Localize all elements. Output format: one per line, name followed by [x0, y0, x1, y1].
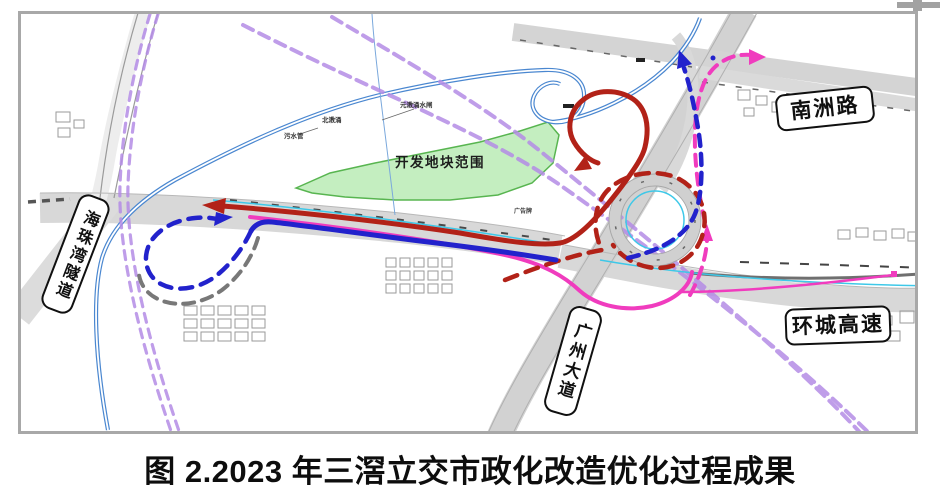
figure-page: { "figure_caption": "图 2.2023 年三滘立交市政化改造…: [0, 0, 940, 502]
tiny-label-billboard: 广告牌: [514, 207, 532, 215]
corner-bracket: [897, 0, 940, 11]
blue-dot: [711, 56, 716, 61]
figure-caption: 图 2.2023 年三滘立交市政化改造优化过程成果: [0, 446, 940, 491]
development-area-label: 开发地块范围: [395, 154, 485, 170]
tiny-label-sluice: 元漖涌水闸: [400, 100, 433, 109]
map-content: 开发地块范围 北漖涌 污水管 元漖涌水闸 广告牌: [18, 10, 938, 440]
tiny-label-sewer: 污水管: [284, 131, 304, 140]
magenta-end-marker: [891, 271, 897, 277]
interchange-map: 开发地块范围 北漖涌 污水管 元漖涌水闸 广告牌: [0, 0, 940, 502]
tiny-label-creek: 北漖涌: [322, 115, 342, 124]
road-label-huancheng: 环城高速: [784, 305, 891, 346]
